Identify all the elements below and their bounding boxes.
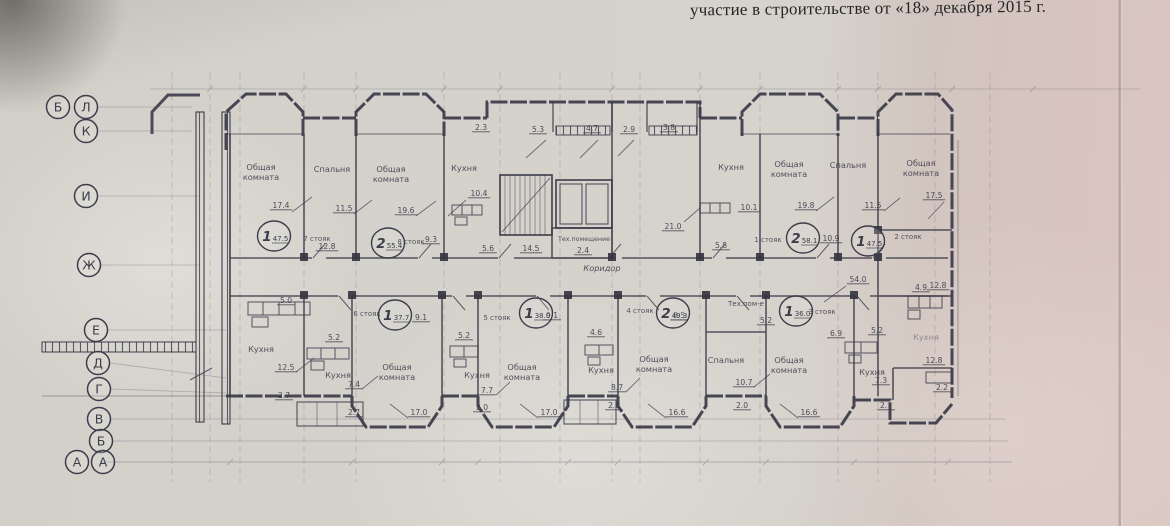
room-label: Общаякомната <box>379 362 415 382</box>
axis-letter: В <box>95 412 104 427</box>
axis-letter: Б <box>54 100 63 115</box>
dimension-value: 7.7 <box>481 386 493 395</box>
floor-plan-photo: участие в строительстве от «18» декабря … <box>0 0 1170 526</box>
room-label: Общаякомната <box>903 158 939 178</box>
dimension-value: 21.0 <box>665 222 682 231</box>
apartment-number: 1 <box>784 304 793 320</box>
axis-letter: Ж <box>82 258 96 273</box>
axis-letter: Л <box>81 100 90 115</box>
room-label: Тех.пом-е <box>727 300 764 308</box>
stoyak-label: 5 стояк <box>483 314 510 322</box>
room-label: Кухня <box>325 370 351 380</box>
dimension-value: 5.3 <box>532 125 544 134</box>
dimension-value: 19.6 <box>398 206 415 215</box>
stairwell <box>500 175 612 235</box>
axis-letter: А <box>73 455 82 470</box>
dimension-value: 10.9 <box>823 234 840 243</box>
dimension-value: 2.4 <box>577 246 589 255</box>
dimension-value: 4.9 <box>915 283 927 292</box>
apartment-number: 1 <box>383 308 392 324</box>
expansion-joint-walls <box>42 95 230 424</box>
dimension-value: 5.0 <box>280 296 292 305</box>
axis-letter: А <box>99 455 108 470</box>
axis-letter: Д <box>93 356 103 371</box>
dimension-value: 5.2 <box>871 326 883 335</box>
axis-letter: Г <box>95 382 103 397</box>
room-label: Общаякомната <box>771 159 807 179</box>
apartment-area: 49.3 <box>672 312 688 320</box>
dimension-value: 8.7 <box>611 383 623 392</box>
apartment-number: 1 <box>262 229 271 245</box>
dimension-value: 12.5 <box>278 363 295 372</box>
apartment-area: 58.1 <box>802 237 818 245</box>
dimension-value: 17.4 <box>273 201 290 210</box>
dimension-value: 9.3 <box>425 235 437 244</box>
stoyak-label: 7 стояк <box>303 235 330 243</box>
paper-fold-line <box>1118 0 1123 526</box>
room-label: Кухня <box>451 163 477 173</box>
apartment-number: 2 <box>661 306 670 322</box>
axis-letter: Б <box>97 434 106 449</box>
dimension-value: 10.4 <box>471 189 488 198</box>
stoyak-label: 3 стояк <box>808 308 835 316</box>
stoyak-label: 8 стояк <box>397 238 424 246</box>
dimension-value: 7.4 <box>348 380 360 389</box>
dimension-value: 17.0 <box>541 408 558 417</box>
room-label: Общаякомната <box>504 362 540 382</box>
dimension-value: 5.2 <box>760 316 772 325</box>
dimension-value: 7.3 <box>875 376 887 385</box>
dimension-value: 54.0 <box>850 275 867 284</box>
dimension-value: 3.8 <box>663 123 675 132</box>
dimension-value: 17.5 <box>926 191 943 200</box>
dimension-value: 5.2 <box>458 331 470 340</box>
dimension-value: 10.7 <box>736 378 753 387</box>
room-label: Спальня <box>314 164 350 174</box>
stoyak-label: 1 стояк <box>754 236 781 244</box>
dimension-value: 2.9 <box>623 125 635 134</box>
dimension-value: 2.2 <box>936 383 948 392</box>
dimension-value: 4.6 <box>590 328 602 337</box>
stoyak-label: 4 стояк <box>626 307 653 315</box>
dimension-value: 16.6 <box>801 408 818 417</box>
apartment-area: 37.7 <box>394 314 410 322</box>
apartment-number: 2 <box>791 231 800 247</box>
elevator-shaft <box>556 180 612 228</box>
room-label: Общаякомната <box>373 164 409 184</box>
apartment-number: 1 <box>524 306 533 322</box>
stoyak-label: 6 стояк <box>353 310 380 318</box>
axis-letter: К <box>82 124 91 139</box>
room-label: Общаякомната <box>243 162 279 182</box>
apartment-number: 2 <box>376 236 385 252</box>
floor-plan-drawing: БЛКИЖЕДГВБАА ОбщаякомнатаСпальняОбщаяком… <box>0 0 1170 526</box>
room-label: Общаякомната <box>771 355 807 375</box>
room-label: Тех.помещение <box>557 236 610 243</box>
dimension-value: 5.8 <box>715 241 727 250</box>
dimension-value: 2.7 <box>348 408 360 417</box>
room-label: Спальня <box>708 355 744 365</box>
room-label: Спальня <box>830 160 866 170</box>
dimension-value: 10.1 <box>741 203 758 212</box>
axis-circles: БЛКИЖЕДГВБАА <box>47 96 115 474</box>
room-label: Кухня <box>718 162 744 172</box>
apartment-area: 47.5 <box>867 240 883 248</box>
room-label: Общаякомната <box>636 354 672 374</box>
dimension-value: 19.8 <box>798 201 815 210</box>
dimension-value: 2.0 <box>736 401 748 410</box>
dimension-value: 6.9 <box>830 329 842 338</box>
dimension-value: 5.6 <box>482 244 494 253</box>
dimension-value: 2.7 <box>880 401 892 410</box>
dimension-value: 2.7 <box>278 391 290 400</box>
dimension-value: 17.0 <box>411 408 428 417</box>
dimension-value: 4.7 <box>586 124 598 133</box>
room-label: Кухня <box>913 332 939 342</box>
dimension-value: 9.1 <box>415 313 427 322</box>
apartment-number: 1 <box>856 234 865 250</box>
dimension-value: 12.8 <box>930 281 947 290</box>
room-label: Кухня <box>248 344 274 354</box>
apartment-area: 47.5 <box>273 235 289 243</box>
dimension-value: 14.5 <box>523 244 540 253</box>
apartment-area: 38.0 <box>535 312 551 320</box>
dimension-value: 2.3 <box>475 123 487 132</box>
stoyak-label: 2 стояк <box>894 233 921 241</box>
dimension-value: 11.5 <box>865 201 882 210</box>
dimension-value: 16.6 <box>669 408 686 417</box>
dimension-value: 12.8 <box>926 356 943 365</box>
room-label: Коридор <box>583 263 620 273</box>
dimension-value: 5.2 <box>328 333 340 342</box>
axis-letter: И <box>81 189 90 204</box>
dimension-value: 2.0 <box>608 401 620 410</box>
dimension-value: 11.5 <box>336 204 353 213</box>
room-label: Кухня <box>588 365 614 375</box>
dimension-value: 2.0 <box>476 403 488 412</box>
axis-letter: Е <box>92 323 100 338</box>
room-label: Кухня <box>464 370 490 380</box>
dimension-value: 12.8 <box>319 242 336 251</box>
